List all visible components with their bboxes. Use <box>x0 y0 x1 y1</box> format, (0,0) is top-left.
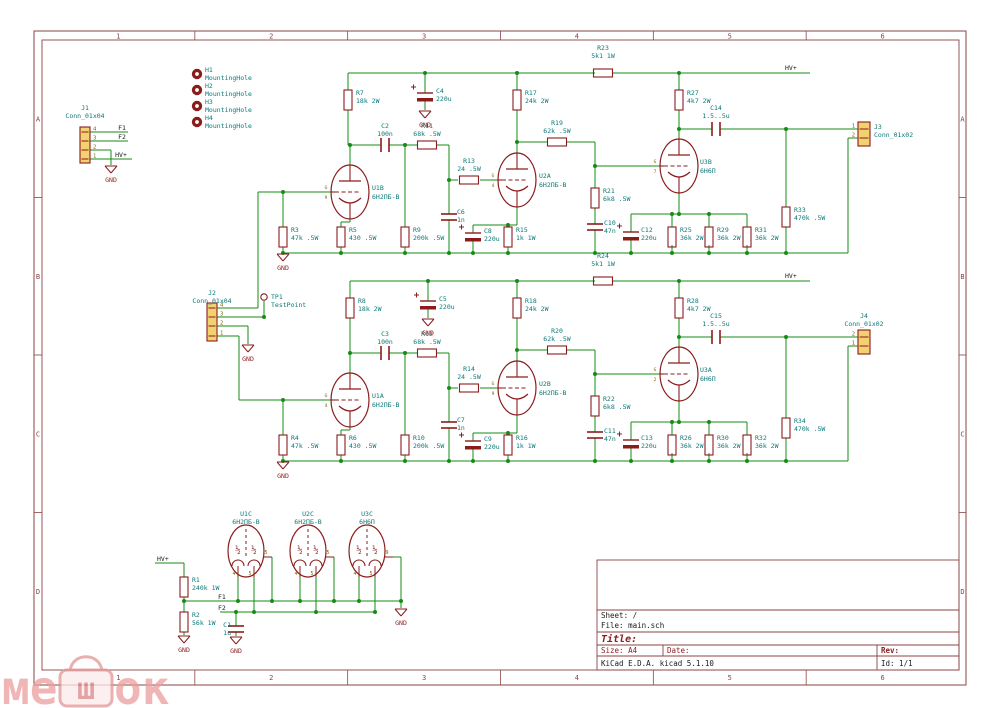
capacitor-C4: C4220u <box>411 85 452 104</box>
capacitor-C3: C3100n <box>377 330 393 360</box>
ref: R10 <box>413 434 425 442</box>
heater-arc <box>294 560 306 566</box>
ref: TP1 <box>271 293 283 301</box>
ref: R18 <box>525 297 537 305</box>
ref: C4 <box>436 87 444 95</box>
ref: U2C <box>302 510 314 518</box>
resistor-body <box>675 298 683 318</box>
grid-pin-name: G <box>492 381 495 387</box>
ref: C3 <box>381 330 389 338</box>
grid-pin-number: 4 <box>492 183 495 189</box>
value: 6Н6П <box>700 167 716 175</box>
tube-U1C: ½½U1C6Н2ПБ-В455 <box>228 510 272 577</box>
resistor-body <box>337 435 345 455</box>
frame-zone-label: D <box>36 588 40 596</box>
value: 18k 2W <box>358 305 382 313</box>
resistor-body <box>504 435 512 455</box>
capacitor-C1: C11u <box>223 621 244 637</box>
tube-U2C: ½½U2C6Н2ПБ-В455 <box>290 510 334 577</box>
resistor-body <box>346 298 354 318</box>
junction-dot <box>262 315 266 319</box>
resistor-body <box>782 207 790 227</box>
ref: J1 <box>81 104 89 112</box>
junction-dot <box>707 459 711 463</box>
ref: R30 <box>717 434 729 442</box>
junction-dot <box>298 599 302 603</box>
junction-dot <box>281 398 285 402</box>
ref: U3C <box>361 510 373 518</box>
ref: R20 <box>551 327 563 335</box>
junction-dot <box>707 212 711 216</box>
net-label-F2: F2 <box>118 133 126 141</box>
half-triode-symbol: ½ <box>297 545 302 556</box>
ref: C1 <box>223 621 231 629</box>
pin-number: 2 <box>852 332 855 338</box>
ref: C10 <box>604 219 616 227</box>
junction-dot <box>403 351 407 355</box>
resistor-R8: R818k 2W <box>346 297 382 318</box>
gnd-label: GND <box>105 176 117 184</box>
ref: C7 <box>457 416 465 424</box>
line <box>419 111 425 118</box>
watermark-text-left: ме <box>2 661 57 708</box>
schematic-sheet: 112233445566AABBCCDD GNDGNDGNDGNDGNDGNDG… <box>0 0 1000 708</box>
title-block-size: Size: A4 <box>601 646 638 655</box>
junction-dot <box>677 335 681 339</box>
tube-envelope <box>228 525 264 577</box>
title-block-id: Id: 1/1 <box>881 659 913 668</box>
resistor-R20: R2062k .5W <box>543 327 570 354</box>
value: 100n <box>377 338 393 346</box>
heater-arc <box>353 560 365 566</box>
value: 1n <box>457 424 465 432</box>
frame-zone-label: 2 <box>269 33 273 41</box>
mounting-hole-icon <box>195 104 199 108</box>
value: 430 .5W <box>349 442 376 450</box>
ref: C13 <box>641 434 653 442</box>
grid-pin-name: G <box>492 173 495 179</box>
gnd-label: GND <box>277 472 289 480</box>
junction-dot <box>447 178 451 182</box>
junction-dot <box>506 431 510 435</box>
ref: C8 <box>484 227 492 235</box>
net-label-HV+: HV+ <box>785 64 797 72</box>
resistor-body <box>591 188 599 208</box>
junction-dot <box>447 251 451 255</box>
junction-dot <box>670 212 674 216</box>
tube-U2B: U2B6Н2ПБ-ВG9 <box>492 361 567 415</box>
pin-number: 1 <box>220 331 223 337</box>
ref: R13 <box>463 157 475 165</box>
cap-plate-polarized <box>623 237 639 241</box>
pin-number: 5 <box>310 571 313 577</box>
value: 1k 1W <box>516 234 536 242</box>
watermark-text-right: ок <box>114 661 169 708</box>
resistor-R4: R447k .5W <box>279 434 318 455</box>
connector-J1: 4321J1Conn_01x04 <box>65 104 104 163</box>
junction-dot <box>784 335 788 339</box>
value: MountingHole <box>205 122 252 130</box>
value: 4k7 2W <box>687 97 711 105</box>
value: 4k7 2W <box>687 305 711 313</box>
connector-body <box>207 303 217 341</box>
value: 200k .5W <box>413 234 444 242</box>
resistor-body <box>782 418 790 438</box>
value: Conn_01x04 <box>192 297 231 305</box>
ref: R5 <box>349 226 357 234</box>
mounting-hole-H4: H4MountingHole <box>192 114 252 130</box>
capacitor-C7: C71n <box>441 416 465 432</box>
value: 47n <box>604 435 616 443</box>
value: 6Н2ПБ-В <box>539 181 566 189</box>
ref: U1B <box>372 184 384 192</box>
connector-J2: 4321J2Conn_01x04 <box>192 289 231 341</box>
junction-dot <box>236 599 240 603</box>
capacitor-C6: C61n <box>441 208 465 224</box>
ref: U3B <box>700 158 712 166</box>
ref: H4 <box>205 114 213 122</box>
junction-dot <box>707 251 711 255</box>
capacitor-C12: C12220u <box>617 224 657 243</box>
gnd-symbol: GND <box>395 609 407 627</box>
ref: R19 <box>551 119 563 127</box>
value: Conn_01x02 <box>844 320 883 328</box>
ref: R1 <box>192 576 200 584</box>
resistor-R31: R3136k 2W <box>743 226 779 247</box>
ref: J2 <box>208 289 216 297</box>
title-block-date: Date: <box>667 646 690 655</box>
grid-pin-name: G <box>325 185 328 191</box>
value: 1u <box>223 629 231 637</box>
pin-number: 4 <box>232 571 235 577</box>
line <box>283 254 289 261</box>
gnd-label: GND <box>242 355 254 363</box>
ref: R15 <box>516 226 528 234</box>
junction-dot <box>373 610 377 614</box>
watermark: ме ш ок <box>2 657 169 708</box>
ref: H3 <box>205 98 213 106</box>
resistor-body <box>548 138 567 146</box>
frame-zone-label: 5 <box>728 33 732 41</box>
pin-number: 3 <box>220 312 223 318</box>
resistor-R6: R6430 .5W <box>337 434 376 455</box>
frame-zone-label: B <box>36 273 40 281</box>
half-triode-symbol: ½ <box>313 545 318 556</box>
junction-dot <box>677 279 681 283</box>
value: 24k 2W <box>525 305 549 313</box>
ref: R8 <box>358 297 366 305</box>
mounting-hole-icon <box>195 88 199 92</box>
resistor-body <box>743 435 751 455</box>
value: 62k .5W <box>543 335 570 343</box>
resistor-R29: R2936k 2W <box>705 226 741 247</box>
tube-envelope <box>349 525 385 577</box>
line <box>184 636 190 643</box>
resistor-R15: R151k 1W <box>504 226 536 247</box>
value: 220u <box>484 235 500 243</box>
junction-dot <box>357 599 361 603</box>
junction-dot <box>593 459 597 463</box>
cathode-arc <box>339 198 361 203</box>
title-block-title: Title: <box>601 633 637 645</box>
resistor-R13: R1324 .5W <box>457 157 481 184</box>
gnd-label: GND <box>395 619 407 627</box>
capacitor-C8: C8220u <box>459 225 500 244</box>
resistor-body <box>591 396 599 416</box>
pin-number: 1 <box>852 341 855 347</box>
tube-U1B: U1B6Н2ПБ-ВG9 <box>325 165 400 219</box>
line <box>178 636 184 643</box>
value: 6k8 .5W <box>603 195 630 203</box>
cap-plate-polarized <box>465 446 481 450</box>
junction-dot <box>332 599 336 603</box>
gnd-symbol: GND <box>277 254 289 272</box>
frame-zone-label: A <box>36 115 41 123</box>
value: 220u <box>641 442 657 450</box>
resistor-body <box>513 90 521 110</box>
cap-plate-polarized <box>417 98 433 102</box>
pin-number: 5 <box>264 550 267 556</box>
title-block-sheet: Sheet: / <box>601 611 637 620</box>
grid-pin-number: 2 <box>654 377 657 383</box>
value: 6Н2ПБ-В <box>372 193 399 201</box>
connector-body <box>858 330 870 354</box>
grid-pin-number: 7 <box>654 169 657 175</box>
tube-U3A: U3A6Н6ПG2 <box>654 347 716 401</box>
line <box>428 319 434 326</box>
junction-dot <box>403 459 407 463</box>
grid-pin-number: 4 <box>325 403 328 409</box>
tube-U2A: U2A6Н2ПБ-ВG4 <box>492 153 567 207</box>
value: 24 .5W <box>457 165 481 173</box>
resistor-R3: R347k .5W <box>279 226 318 247</box>
frame-zone-label: C <box>36 430 40 438</box>
value: MountingHole <box>205 90 252 98</box>
line <box>230 637 236 644</box>
value: 36k 2W <box>755 234 779 242</box>
ref: R22 <box>603 395 615 403</box>
tube-U3C: ½½U3C6Н6П459 <box>349 510 393 577</box>
resistor-body <box>180 612 188 632</box>
gnd-symbol: GND <box>178 636 190 654</box>
resistor-body <box>344 90 352 110</box>
line <box>401 609 407 616</box>
resistor-R32: R3236k 2W <box>743 434 779 455</box>
net-label-F1: F1 <box>118 124 126 132</box>
junction-dot <box>426 279 430 283</box>
value: 1k 1W <box>516 442 536 450</box>
resistor-R34: R34470k .5W <box>782 417 825 438</box>
mounting-hole-icon <box>195 72 199 76</box>
net-label-F2: F2 <box>218 604 226 612</box>
ref: C2 <box>381 122 389 130</box>
ref: R29 <box>717 226 729 234</box>
heater-arc <box>248 560 260 566</box>
ref: H1 <box>205 66 213 74</box>
frame-zone-label: D <box>960 588 964 596</box>
value: 6Н2ПБ-В <box>372 401 399 409</box>
junction-dot <box>670 420 674 424</box>
ref: R17 <box>525 89 537 97</box>
junction-dot <box>506 251 510 255</box>
pin-number: 2 <box>220 321 223 327</box>
heater-arc <box>369 560 381 566</box>
grid-pin-number: 9 <box>492 391 495 397</box>
junction-dot <box>506 459 510 463</box>
ref: R9 <box>413 226 421 234</box>
ref: R12 <box>421 330 433 338</box>
value: 36k 2W <box>755 442 779 450</box>
frame-inner <box>42 40 959 670</box>
net-label-F1: F1 <box>218 593 226 601</box>
value: 430 .5W <box>349 234 376 242</box>
junction-dot <box>339 459 343 463</box>
resistor-body <box>513 298 521 318</box>
pin-number: 9 <box>385 550 388 556</box>
resistor-body <box>180 577 188 597</box>
connector-J4: 21J4Conn_01x02 <box>844 312 883 354</box>
ref: R21 <box>603 187 615 195</box>
grid-pin-name: G <box>654 367 657 373</box>
connector-body <box>858 122 870 146</box>
frame-zone-label: 4 <box>575 674 579 682</box>
ref: R23 <box>597 44 609 52</box>
value: 1.5..5u <box>702 112 729 120</box>
junction-dot <box>506 223 510 227</box>
resistor-R7: R718k 2W <box>344 89 380 110</box>
watermark-bag-letter: ш <box>77 672 95 707</box>
net-label-HV+: HV+ <box>785 272 797 280</box>
resistor-body <box>594 277 613 285</box>
junction-dot <box>784 459 788 463</box>
cap-plate-polarized <box>623 445 639 449</box>
value: 36k 2W <box>680 442 704 450</box>
junction-dot <box>447 386 451 390</box>
resistor-body <box>705 227 713 247</box>
title-block-file: File: main.sch <box>601 621 664 630</box>
heater-arc <box>310 560 322 566</box>
junction-dot <box>670 459 674 463</box>
junction-dot <box>399 599 403 603</box>
resistor-body <box>401 435 409 455</box>
resistor-R27: R274k7 2W <box>675 89 711 110</box>
pin-number: 5 <box>369 571 372 577</box>
value: 47k .5W <box>291 442 318 450</box>
value: 100n <box>377 130 393 138</box>
resistor-R2: R256k 1W <box>180 611 216 632</box>
junction-dot <box>784 127 788 131</box>
resistor-body <box>668 227 676 247</box>
line <box>105 166 111 173</box>
resistor-R5: R5430 .5W <box>337 226 376 247</box>
ref: R2 <box>192 611 200 619</box>
ref: R34 <box>794 417 806 425</box>
mounting-hole-H1: H1MountingHole <box>192 66 252 82</box>
junction-dot <box>745 251 749 255</box>
ref: J3 <box>874 123 882 131</box>
value: 6Н2ПБ-В <box>539 389 566 397</box>
value: TestPoint <box>271 301 306 309</box>
ref: H2 <box>205 82 213 90</box>
line <box>395 609 401 616</box>
junction-dot <box>677 212 681 216</box>
resistor-body <box>418 349 437 357</box>
connector-J3: 12J3Conn_01x02 <box>852 122 914 146</box>
resistor-body <box>460 176 479 184</box>
cathode-arc <box>506 186 528 191</box>
resistor-R21: R216k8 .5W <box>591 187 630 208</box>
value: Conn_01x04 <box>65 112 104 120</box>
cathode-arc <box>668 380 690 385</box>
pin-number: 2 <box>93 145 96 151</box>
value: 220u <box>641 234 657 242</box>
gnd-label: GND <box>230 647 242 655</box>
resistor-R33: R33470k .5W <box>782 206 825 227</box>
ref: C15 <box>710 312 722 320</box>
value: 6Н6П <box>359 518 375 526</box>
value: 24 .5W <box>457 373 481 381</box>
resistor-body <box>668 435 676 455</box>
junction-dot <box>348 351 352 355</box>
junction-dot <box>629 459 633 463</box>
value: 47n <box>604 227 616 235</box>
ref: R16 <box>516 434 528 442</box>
value: 1n <box>457 216 465 224</box>
pin-number: 4 <box>294 571 297 577</box>
resistor-body <box>548 346 567 354</box>
junction-dot <box>677 420 681 424</box>
capacitor-C15: C151.5..5u <box>702 312 729 344</box>
gnd-symbol: GND <box>277 462 289 480</box>
frame-zone-label: 6 <box>880 674 884 682</box>
resistor-body <box>743 227 751 247</box>
ref: R26 <box>680 434 692 442</box>
resistor-R16: R161k 1W <box>504 434 536 455</box>
value: 240k 1W <box>192 584 219 592</box>
tube-envelope <box>290 525 326 577</box>
testpoint-icon <box>261 294 267 300</box>
frame-zone-label: 3 <box>422 674 426 682</box>
resistor-body <box>279 227 287 247</box>
resistor-R25: R2536k 2W <box>668 226 704 247</box>
capacitor-C9: C9220u <box>459 433 500 452</box>
ref: C11 <box>604 427 616 435</box>
value: MountingHole <box>205 74 252 82</box>
frame-zone-label: A <box>960 115 965 123</box>
junction-dot <box>471 459 475 463</box>
pin-number: 1 <box>93 154 96 160</box>
value: 220u <box>484 443 500 451</box>
mounting-hole-icon <box>195 120 199 124</box>
value: 6Н2ПБ-В <box>294 518 321 526</box>
title-block-rev: Rev: <box>881 646 899 655</box>
junction-dot <box>515 279 519 283</box>
junction-dot <box>447 459 451 463</box>
grid-pin-number: 9 <box>325 195 328 201</box>
ref: R3 <box>291 226 299 234</box>
resistor-R14: R1424 .5W <box>457 365 481 392</box>
junction-dot <box>677 127 681 131</box>
value: 6Н6П <box>700 375 716 383</box>
frame-zone-label: B <box>960 273 964 281</box>
gnd-symbol: GND <box>230 637 242 655</box>
pin-number: 3 <box>93 136 96 142</box>
resistor-body <box>401 227 409 247</box>
value: 200k .5W <box>413 442 444 450</box>
ref: R7 <box>356 89 364 97</box>
junction-dot <box>182 599 186 603</box>
junction-dot <box>252 610 256 614</box>
